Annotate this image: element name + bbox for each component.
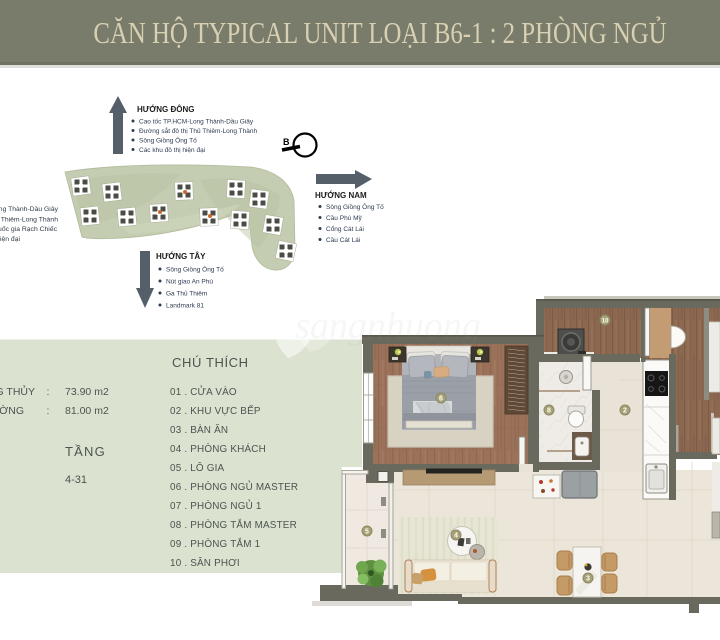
- svg-text:4-31: 4-31: [65, 474, 87, 486]
- svg-text:10: 10: [602, 319, 609, 325]
- svg-text::: :: [47, 386, 50, 398]
- svg-text:6: 6: [439, 396, 443, 403]
- svg-text:CĂN HỘ TYPICAL UNIT LOẠI B6-1: CĂN HỘ TYPICAL UNIT LOẠI B6-1 : 2 PHÒNG …: [93, 16, 666, 50]
- svg-text:04 . PHÒNG KHÁCH: 04 . PHÒNG KHÁCH: [170, 444, 266, 455]
- svg-text:07 . PHÒNG NGỦ 1: 07 . PHÒNG NGỦ 1: [170, 500, 262, 512]
- svg-text:05 . LÔ GIA: 05 . LÔ GIA: [170, 463, 225, 474]
- svg-text:sangnhuong: sangnhuong: [295, 305, 481, 347]
- svg-text:4: 4: [454, 533, 458, 540]
- svg-text:02 . KHU VỰC BẾP: 02 . KHU VỰC BẾP: [170, 406, 261, 417]
- svg-text:Đường sắt đô thị Thủ Thiêm-Lon: Đường sắt đô thị Thủ Thiêm-Long Thành: [0, 215, 58, 224]
- svg-text:03 . BÀN ĂN: 03 . BÀN ĂN: [170, 425, 228, 436]
- svg-text:Cầu Phú Mỹ: Cầu Phú Mỹ: [326, 213, 363, 222]
- svg-text:10 . SÂN PHƠI: 10 . SÂN PHƠI: [170, 558, 240, 569]
- svg-text:2: 2: [623, 408, 627, 415]
- svg-text:Cao tốc TP.HCM-Long Thành-Dầu: Cao tốc TP.HCM-Long Thành-Dầu Giây: [139, 117, 254, 126]
- svg-text:Cổng Cát Lái: Cổng Cát Lái: [326, 225, 364, 233]
- svg-text:8: 8: [547, 408, 551, 415]
- svg-text:ƯỜNG: ƯỜNG: [0, 404, 24, 417]
- svg-text:Các khu đô thị hiện đại: Các khu đô thị hiện đại: [139, 147, 205, 154]
- svg-text:G THỦY: G THỦY: [0, 385, 35, 398]
- svg-text:Sông Giồng Ông Tố: Sông Giồng Ông Tố: [326, 202, 384, 211]
- svg-text:81.00 m2: 81.00 m2: [65, 405, 109, 417]
- svg-text:B: B: [283, 137, 290, 147]
- svg-text:Khu liên hợp thể thao quốc gia: Khu liên hợp thể thao quốc gia Rạch Chiế…: [0, 224, 58, 233]
- svg-text:3: 3: [586, 576, 590, 583]
- svg-text:HƯỚNG NAM: HƯỚNG NAM: [315, 191, 367, 200]
- svg-text:09 . PHÒNG TẮM 1: 09 . PHÒNG TẮM 1: [170, 539, 261, 550]
- svg-text:Ga Thủ Thiêm: Ga Thủ Thiêm: [166, 290, 207, 298]
- svg-text::: :: [47, 405, 50, 417]
- svg-text:Landmark 81: Landmark 81: [166, 303, 204, 310]
- svg-text:TẦNG: TẦNG: [65, 444, 106, 459]
- svg-text:08 . PHÒNG TẮM MASTER: 08 . PHÒNG TẮM MASTER: [170, 520, 297, 531]
- svg-text:Nút giao An Phú: Nút giao An Phú: [166, 279, 213, 286]
- svg-text:HƯỚNG TÂY: HƯỚNG TÂY: [156, 252, 206, 261]
- svg-text:Cao tốc TP.HCM-Long Thành-Dầu: Cao tốc TP.HCM-Long Thành-Dầu Giây: [0, 204, 59, 213]
- svg-text:Cầu Cát Lái: Cầu Cát Lái: [326, 235, 360, 244]
- svg-text:Đường sắt đô thị Thủ Thiêm-Lon: Đường sắt đô thị Thủ Thiêm-Long Thành: [139, 126, 257, 135]
- svg-text:5: 5: [365, 529, 369, 536]
- svg-text:CHÚ THÍCH: CHÚ THÍCH: [172, 355, 249, 370]
- svg-text:06 . PHÒNG NGỦ MASTER: 06 . PHÒNG NGỦ MASTER: [170, 481, 298, 493]
- svg-text:Sông Giồng Ông Tố: Sông Giồng Ông Tố: [139, 136, 197, 145]
- svg-text:HƯỚNG ĐÔNG: HƯỚNG ĐÔNG: [137, 105, 194, 114]
- svg-text:Sông Giồng Ông Tố: Sông Giồng Ông Tố: [166, 265, 224, 274]
- svg-text:Các khu đô thị hiện đại: Các khu đô thị hiện đại: [0, 236, 20, 243]
- svg-text:01 . CỬA VÀO: 01 . CỬA VÀO: [170, 386, 237, 398]
- svg-text:73.90 m2: 73.90 m2: [65, 386, 109, 398]
